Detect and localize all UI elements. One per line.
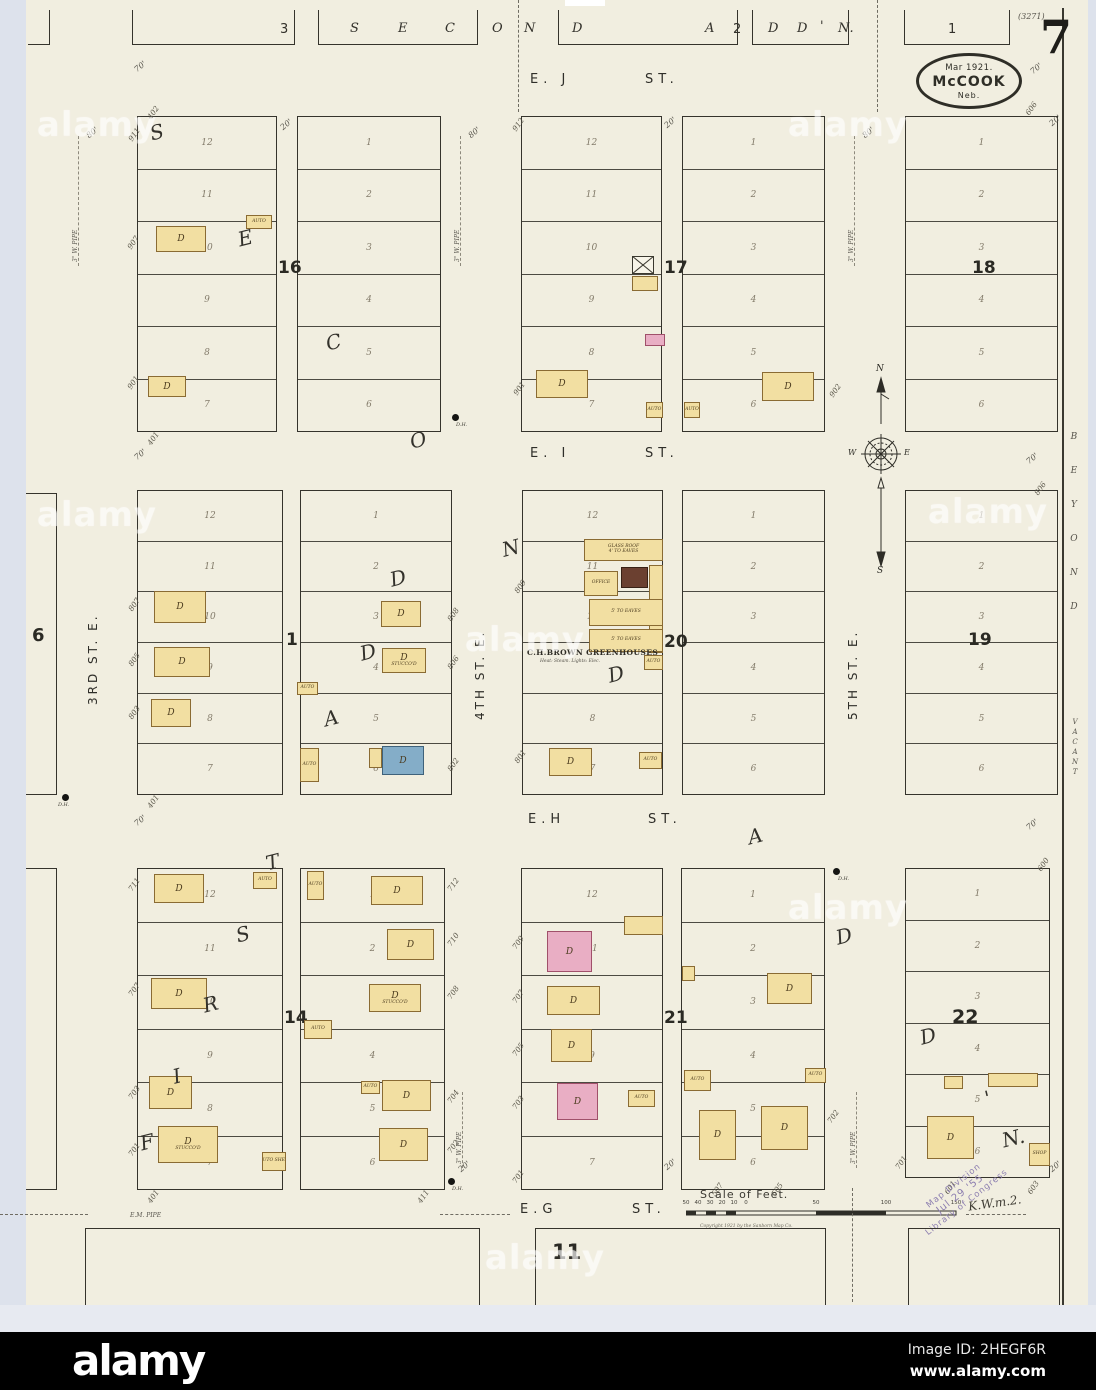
water-pipe-note: 3" W. PIPE <box>850 1132 857 1164</box>
dwelling-label: D <box>566 947 573 957</box>
addition-letter: D <box>797 21 808 36</box>
double-hydrant-dot <box>448 1178 455 1185</box>
margin-letter: V <box>1073 718 1078 726</box>
street-eh: E.H <box>528 812 565 827</box>
scale-tick: 20 <box>719 1200 726 1206</box>
building-dwelling: D <box>382 1080 431 1111</box>
addition-letter: C <box>445 21 456 36</box>
dwelling-label: D <box>175 989 182 999</box>
lot-number: 6 <box>906 743 1057 794</box>
building-dwelling: D <box>549 748 592 776</box>
garage-label: AUTO <box>364 1085 378 1090</box>
building-outbuilding <box>624 916 663 935</box>
building-dwelling: D <box>156 226 206 252</box>
margin-letter: B <box>1071 432 1078 442</box>
building-garage: AUTO <box>361 1081 380 1094</box>
building-shop: SHOP <box>1029 1143 1050 1166</box>
stucco-label: STUCCO'D <box>175 1147 200 1152</box>
street-eg-st: ST. <box>632 1202 666 1217</box>
block-number-18: 18 <box>972 258 996 278</box>
street-number: 710 <box>445 931 461 948</box>
scale-tick: 40 <box>695 1200 702 1206</box>
lot-number: 4 <box>298 274 440 327</box>
addition-letter: O <box>492 21 504 36</box>
street-centerline <box>518 0 519 112</box>
double-hydrant-dot <box>833 868 840 875</box>
addition-letter: E <box>398 21 409 36</box>
dwelling-label: D <box>714 1130 721 1140</box>
lot-number: 3 <box>683 221 824 274</box>
block-number-3: 3 <box>280 22 289 37</box>
lot-number: 2 <box>906 169 1057 222</box>
street-number: 401 <box>145 1188 161 1205</box>
lot-number: 1 <box>301 491 451 541</box>
street-centerline <box>877 0 878 112</box>
street-ej: E. J <box>530 72 570 87</box>
lot-number: 11 <box>522 169 661 222</box>
garage-label: AUTO <box>644 758 658 763</box>
building-outbuilding <box>944 1076 963 1089</box>
building-dwelling-stone: D <box>382 746 424 775</box>
dwelling-label: D <box>570 996 577 1006</box>
block-number-22: 22 <box>952 1006 978 1028</box>
building-dwelling: D <box>761 1106 808 1150</box>
dwelling-label: D <box>393 886 400 896</box>
title-state: Neb. <box>958 91 981 100</box>
street-width-80: 80' <box>467 125 482 140</box>
margin-letter: C <box>1072 738 1077 746</box>
dwelling-label: D <box>397 609 404 619</box>
margin-letter: A <box>1073 748 1078 756</box>
addition-letter: ' <box>820 19 825 34</box>
lot-number: 4 <box>301 642 451 693</box>
map-title-oval: Mar 1921. McCOOK Neb. <box>916 53 1022 109</box>
building-outbuilding <box>632 276 658 291</box>
lot-number: 8 <box>523 693 662 744</box>
addition-letter: D <box>572 21 583 36</box>
building-dwelling: D <box>148 376 186 397</box>
image-id: Image ID: 2HEGF6R <box>908 1342 1046 1358</box>
building-dwelling: D <box>149 1076 192 1109</box>
margin-letter: N <box>1070 568 1078 578</box>
lot-number: 2 <box>683 169 824 222</box>
compass-e: E <box>904 448 910 457</box>
building-auto-shed: AUTO SHED <box>262 1152 286 1171</box>
addition-letter: N <box>524 21 536 36</box>
double-hydrant-label: D.H. <box>452 1186 463 1192</box>
diagonal-letter: A <box>745 823 765 850</box>
street-number: 411 <box>415 1188 431 1205</box>
street-eh-st: ST. <box>648 812 682 827</box>
street-number: 704 <box>445 1088 461 1105</box>
garage-label: AUTO <box>685 408 699 413</box>
scan-edge-right <box>1088 0 1096 1332</box>
block-number-17: 17 <box>664 258 688 278</box>
lot-number: 6 <box>906 379 1057 432</box>
margin-letter: E <box>1071 466 1078 476</box>
building-dwelling: D <box>154 874 204 903</box>
garage-label: AUTO <box>691 1078 705 1083</box>
margin-vacant: VACANT <box>1072 718 1078 776</box>
scale-tick: 10 <box>731 1200 738 1206</box>
lot-number: 8 <box>138 326 276 379</box>
eaves-label: 4' TO EAVES <box>609 550 639 555</box>
lot-number: 2 <box>683 541 824 592</box>
dwelling-label: D <box>178 657 185 667</box>
building-shed <box>645 334 665 346</box>
street-number: 702 <box>825 1108 841 1125</box>
lot-number: 12 <box>522 869 662 922</box>
watermark: alamy <box>788 105 908 145</box>
alamy-logo[interactable]: alamy <box>72 1336 204 1385</box>
building-garage: AUTO <box>646 402 663 418</box>
lot-number: 5 <box>298 326 440 379</box>
sheet-border-line <box>1062 8 1064 1305</box>
dwelling-label: D <box>567 757 574 767</box>
building-dwelling: D <box>154 591 206 623</box>
margin-letter: N <box>1072 758 1078 766</box>
garage-label: AUTO <box>301 686 315 691</box>
street-width-70: 70' <box>133 59 148 74</box>
lot-number: 2 <box>301 541 451 592</box>
compass-w: W <box>848 448 856 457</box>
building-garage: AUTO <box>684 1070 711 1091</box>
dwelling-label: D <box>407 940 414 950</box>
street-width-70: 70' <box>1025 817 1040 832</box>
dwelling-label: D <box>786 984 793 994</box>
alamy-url[interactable]: www.alamy.com <box>910 1362 1046 1380</box>
block-number-19: 19 <box>968 630 992 650</box>
addition-letter: A <box>705 21 715 36</box>
dwelling-label: D <box>403 1091 410 1101</box>
street-width-70: 70' <box>1025 451 1040 466</box>
lot-number: 2 <box>682 922 824 976</box>
building-dwelling: D <box>371 876 423 905</box>
building-boiler-house <box>621 567 648 588</box>
garage-label: AUTO <box>647 660 661 665</box>
lot-number: 7 <box>138 743 282 794</box>
street-eg: E.G <box>520 1202 557 1217</box>
lot-number: 2 <box>298 169 440 222</box>
building-dwelling: D <box>154 647 210 677</box>
scan-notch <box>565 0 605 6</box>
building-dwelling: D <box>699 1110 736 1160</box>
sheet-number: 7 <box>1040 14 1072 60</box>
dwelling-label: D <box>400 1140 407 1150</box>
scale-tick: 100 <box>881 1200 892 1206</box>
watermark: alamy <box>465 620 585 660</box>
building-dwelling: D <box>151 699 191 727</box>
water-pipe-note: 3" W. PIPE <box>848 230 855 262</box>
lot-number: 12 <box>523 491 662 541</box>
lot-number: 11 <box>138 541 282 592</box>
eaves-label: 5' TO EAVES <box>611 638 641 643</box>
building-garage: AUTO <box>628 1090 655 1107</box>
building-dwelling-brick: D <box>557 1083 598 1120</box>
block20-right-lots: 123456 <box>682 490 825 795</box>
lot-number: 3 <box>683 591 824 642</box>
dwelling-label: D <box>947 1133 954 1143</box>
partial-block-left <box>26 868 57 1190</box>
alley-width-20: 20' <box>663 115 678 130</box>
block-number-21: 21 <box>664 1008 688 1028</box>
street-width-70: 70' <box>133 447 148 462</box>
dwelling-label: D <box>781 1123 788 1133</box>
block-number-2: 2 <box>733 22 742 37</box>
block-number-16: 16 <box>278 258 302 278</box>
street-width-70: 70' <box>133 813 148 828</box>
street-third: 3RD ST. E. <box>86 613 100 705</box>
garage-label: AUTO <box>809 1073 823 1078</box>
street-dashes <box>440 1214 510 1215</box>
partial-block-bottom <box>85 1228 480 1305</box>
building-garage: AUTO <box>805 1068 826 1083</box>
margin-letter: Y <box>1071 500 1077 510</box>
watermark: alamy <box>37 105 157 145</box>
margin-beyond: BEYOND <box>1070 432 1078 612</box>
partial-block-bottom <box>908 1228 1060 1305</box>
auto-shed-label: AUTO SHED <box>262 1159 286 1164</box>
watermark: alamy <box>928 492 1048 532</box>
margin-letter: T <box>1073 768 1078 776</box>
compass-n: N <box>876 364 884 374</box>
watermark: alamy <box>788 888 908 928</box>
water-pipe-note: 3" W. PIPE <box>454 230 461 262</box>
building-garage: AUTO <box>304 1020 332 1039</box>
lot-number: 9 <box>138 1029 282 1083</box>
block16-right-lots: 123456 <box>297 116 441 432</box>
addition-letter: D <box>768 21 779 36</box>
street-number: 902 <box>827 382 843 399</box>
double-hydrant-label: D.H. <box>456 422 467 428</box>
street-centerline <box>852 1188 853 1302</box>
scan-edge-bottom <box>0 1305 1096 1332</box>
eaves-label: 5' TO EAVES <box>611 610 641 615</box>
garage-label: AUTO <box>303 763 317 768</box>
building-dwelling-brick: D <box>547 931 592 972</box>
lot-number: 9 <box>522 1029 662 1083</box>
lot-number: 11 <box>138 169 276 222</box>
dwelling-label: D <box>167 708 174 718</box>
building-dwelling: D <box>151 978 207 1009</box>
building-greenhouse-glassroof: GLASS ROOF 4' TO EAVES <box>584 539 663 561</box>
building-dwelling: D <box>762 372 814 401</box>
watermark: alamy <box>37 495 157 535</box>
building-dwelling: D <box>536 370 588 398</box>
lot-number: 9 <box>138 274 276 327</box>
double-hydrant-dot <box>452 414 459 421</box>
title-date: Mar 1921. <box>945 63 993 73</box>
alamy-footer: alamy Image ID: 2HEGF6R www.alamy.com <box>0 1332 1096 1390</box>
addition-letter: N. <box>838 21 855 36</box>
double-hydrant-dot <box>62 794 69 801</box>
lot-number: 1 <box>906 117 1057 169</box>
building-dwelling: D <box>379 1128 428 1161</box>
building-garage: AUTO <box>307 871 324 900</box>
office-label: OFFICE <box>592 581 610 586</box>
street-number: 712 <box>445 876 461 893</box>
scale-tick: 0 <box>744 1200 748 1206</box>
garage-label: AUTO <box>311 1027 325 1032</box>
partial-block-3 <box>132 10 295 45</box>
lot-number: 4 <box>683 642 824 693</box>
lot-number: 4 <box>906 274 1057 327</box>
lot-number: 3 <box>298 221 440 274</box>
building-outbuilding <box>682 966 695 981</box>
dwelling-label: D <box>163 382 170 392</box>
street-fifth: 5TH ST. E. <box>846 630 860 720</box>
street-dashes <box>0 1214 88 1215</box>
building-dwelling-stucco: DSTUCCO'D <box>382 648 426 673</box>
lot-number: 1 <box>906 869 1049 920</box>
garage-label: AUTO <box>252 220 266 225</box>
dwelling-label: D <box>574 1097 581 1107</box>
building-dwelling: D <box>387 929 434 960</box>
lot-number: 11 <box>138 922 282 976</box>
lot-number: 2 <box>906 541 1057 592</box>
water-pipe-note: E.M. PIPE <box>130 1212 161 1219</box>
title-city: McCOOK <box>932 74 1005 90</box>
street-ei: E. I <box>530 446 570 461</box>
lot-number: 3 <box>301 591 451 642</box>
block-number-1: 1 <box>286 630 298 650</box>
building-annex <box>369 748 382 768</box>
building-dwelling: D <box>927 1116 974 1159</box>
watermark: alamy <box>485 1238 605 1278</box>
alley-width-20: 20' <box>279 117 294 132</box>
block1-left-lots: 121110987 <box>137 490 283 795</box>
margin-letter: O <box>1070 534 1077 544</box>
lot-number: 12 <box>522 117 661 169</box>
double-hydrant-label: D.H. <box>58 802 69 808</box>
building-dwelling: D <box>381 601 421 627</box>
lot-number: 6 <box>683 743 824 794</box>
block-number-1: 1 <box>948 22 957 37</box>
addition-letter: S <box>350 21 360 36</box>
dwelling-label: D <box>558 379 565 389</box>
scale-tick: 50 <box>813 1200 820 1206</box>
building-garage: AUTO <box>639 752 662 769</box>
partial-block <box>28 10 50 45</box>
block-number-6: 6 <box>32 625 45 646</box>
street-number: 708 <box>445 984 461 1001</box>
building-garage: AUTO <box>300 748 319 782</box>
building-dwelling-stucco: DSTUCCO'D <box>158 1126 218 1163</box>
block-number-20: 20 <box>664 632 688 652</box>
building-dwelling-stucco: DSTUCCO'D <box>369 984 421 1012</box>
building-outbuilding <box>988 1073 1038 1087</box>
lot-number: 4 <box>683 274 824 327</box>
lot-number: 5 <box>906 693 1057 744</box>
dwelling-label: D <box>167 1088 174 1098</box>
scan-edge-left <box>0 0 26 1332</box>
scale-tick: 50 <box>683 1200 690 1206</box>
compass-rose: N W E S <box>856 366 906 581</box>
lot-number: 5 <box>906 326 1057 379</box>
garage-label: AUTO <box>309 883 323 888</box>
street-number: 401 <box>145 430 161 447</box>
dwelling-label: D <box>784 382 791 392</box>
lot-number: 12 <box>138 491 282 541</box>
building-office: OFFICE <box>584 571 618 596</box>
dwelling-label: D <box>175 884 182 894</box>
lot-number: 6 <box>298 379 440 432</box>
building-garage: AUTO <box>684 402 700 418</box>
dwelling-label: D <box>177 234 184 244</box>
alley-width-20: 20' <box>663 1157 678 1172</box>
water-pipe-note: 3" W. PIPE <box>72 230 79 262</box>
lot-number: 5 <box>683 326 824 379</box>
double-hydrant-label: D.H. <box>838 876 849 882</box>
water-pipe-note: 3" W. PIPE <box>456 1132 463 1164</box>
street-number: 606 <box>1023 100 1039 117</box>
building-garage: AUTO <box>253 872 277 889</box>
lot-number: 2 <box>906 920 1049 972</box>
building-windmill <box>632 256 654 274</box>
lot-number: 5 <box>683 693 824 744</box>
building-dwelling: D <box>547 986 600 1015</box>
margin-letter: D <box>1070 602 1077 612</box>
garage-label: AUTO <box>258 878 272 883</box>
dwelling-label: D <box>399 756 406 766</box>
street-number: 401 <box>145 793 161 810</box>
lot-number: 1 <box>298 117 440 169</box>
building-dwelling: D <box>551 1029 592 1062</box>
garage-label: AUTO <box>635 1096 649 1101</box>
garage-label: AUTO <box>648 408 662 413</box>
sanborn-map-sheet: (3271) 7 Mar 1921. McCOOK Neb. 70' 3 S E… <box>0 0 1096 1390</box>
lot-number: 7 <box>522 1136 662 1190</box>
stucco-label: STUCCO'D <box>391 663 416 668</box>
scale-tick: 30 <box>707 1200 714 1206</box>
lot-number: 1 <box>683 491 824 541</box>
margin-letter: A <box>1073 728 1078 736</box>
street-ei-st: ST. <box>645 446 679 461</box>
building-garage: AUTO <box>297 682 318 695</box>
street-ej-st: ST. <box>645 72 679 87</box>
stucco-label: STUCCO'D <box>382 1001 407 1006</box>
shop-label: SHOP <box>1033 1152 1047 1157</box>
compass-s: S <box>877 566 883 576</box>
building-garage: AUTO <box>644 655 663 670</box>
dwelling-label: D <box>568 1041 575 1051</box>
building-dwelling: D <box>767 973 812 1004</box>
diagonal-letter: N <box>499 534 522 562</box>
building-greenhouse: 5' TO EAVES <box>589 599 663 626</box>
dwelling-label: D <box>176 602 183 612</box>
